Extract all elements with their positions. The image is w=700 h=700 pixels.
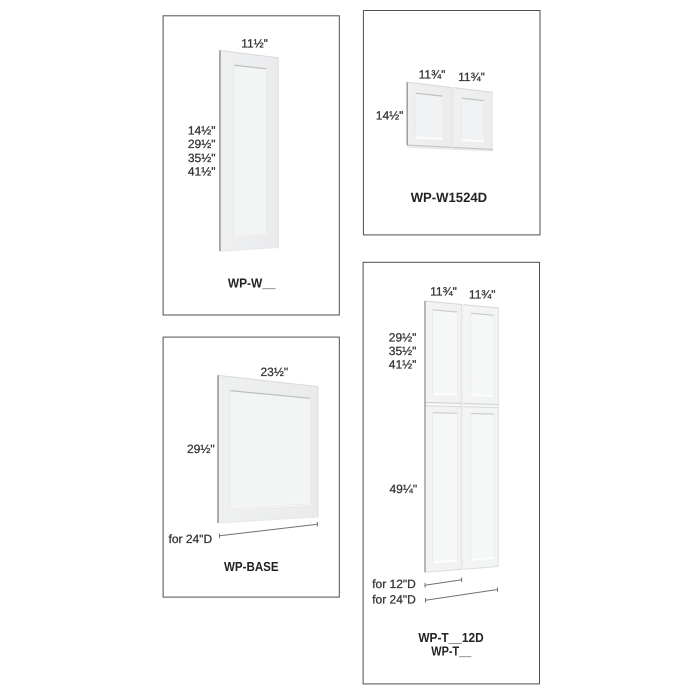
svg-text:11¾": 11¾"	[469, 287, 496, 301]
svg-text:29½": 29½"	[188, 137, 216, 151]
svg-text:35½": 35½"	[389, 344, 417, 358]
svg-text:29½": 29½"	[187, 442, 215, 456]
svg-text:WP-W1524D: WP-W1524D	[411, 190, 488, 205]
svg-text:for 24"D: for 24"D	[372, 592, 416, 606]
svg-text:11½": 11½"	[241, 37, 268, 51]
svg-text:11¾": 11¾"	[419, 68, 446, 82]
svg-text:14½": 14½"	[188, 124, 216, 138]
svg-text:for 24"D: for 24"D	[169, 532, 213, 546]
svg-text:23½": 23½"	[260, 365, 288, 379]
svg-text:WP-T__: WP-T__	[431, 643, 472, 658]
svg-text:WP-W__: WP-W__	[228, 276, 276, 291]
svg-text:11¾": 11¾"	[458, 70, 485, 84]
svg-text:29½": 29½"	[389, 330, 417, 344]
svg-text:35½": 35½"	[188, 151, 216, 165]
svg-text:for 12"D: for 12"D	[372, 577, 416, 591]
svg-text:41½": 41½"	[188, 164, 216, 178]
svg-text:WP-BASE: WP-BASE	[224, 559, 279, 574]
svg-text:11¾": 11¾"	[430, 285, 457, 299]
svg-text:49¼": 49¼"	[389, 482, 417, 496]
svg-text:14½": 14½"	[376, 108, 404, 122]
svg-text:41½": 41½"	[389, 358, 417, 372]
